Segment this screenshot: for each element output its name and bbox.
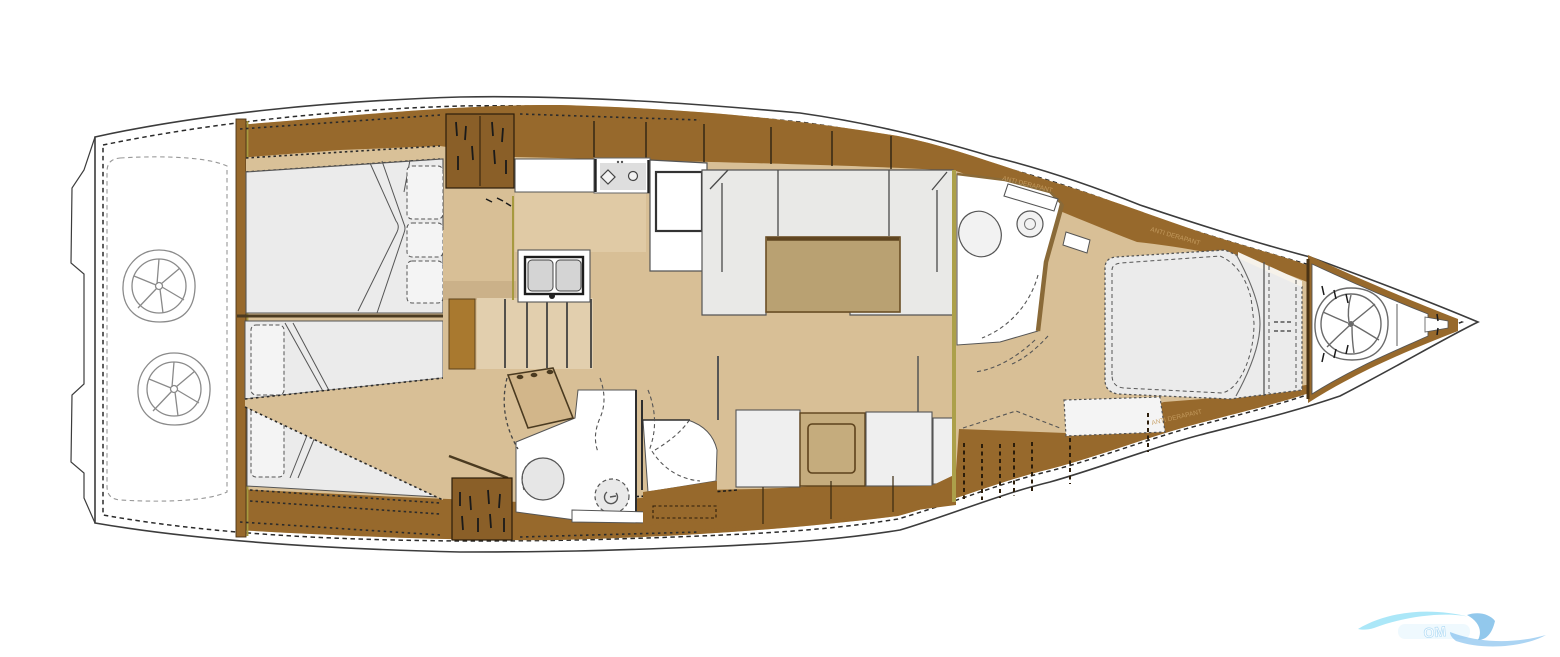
svg-text:OM: OM — [1423, 623, 1447, 641]
